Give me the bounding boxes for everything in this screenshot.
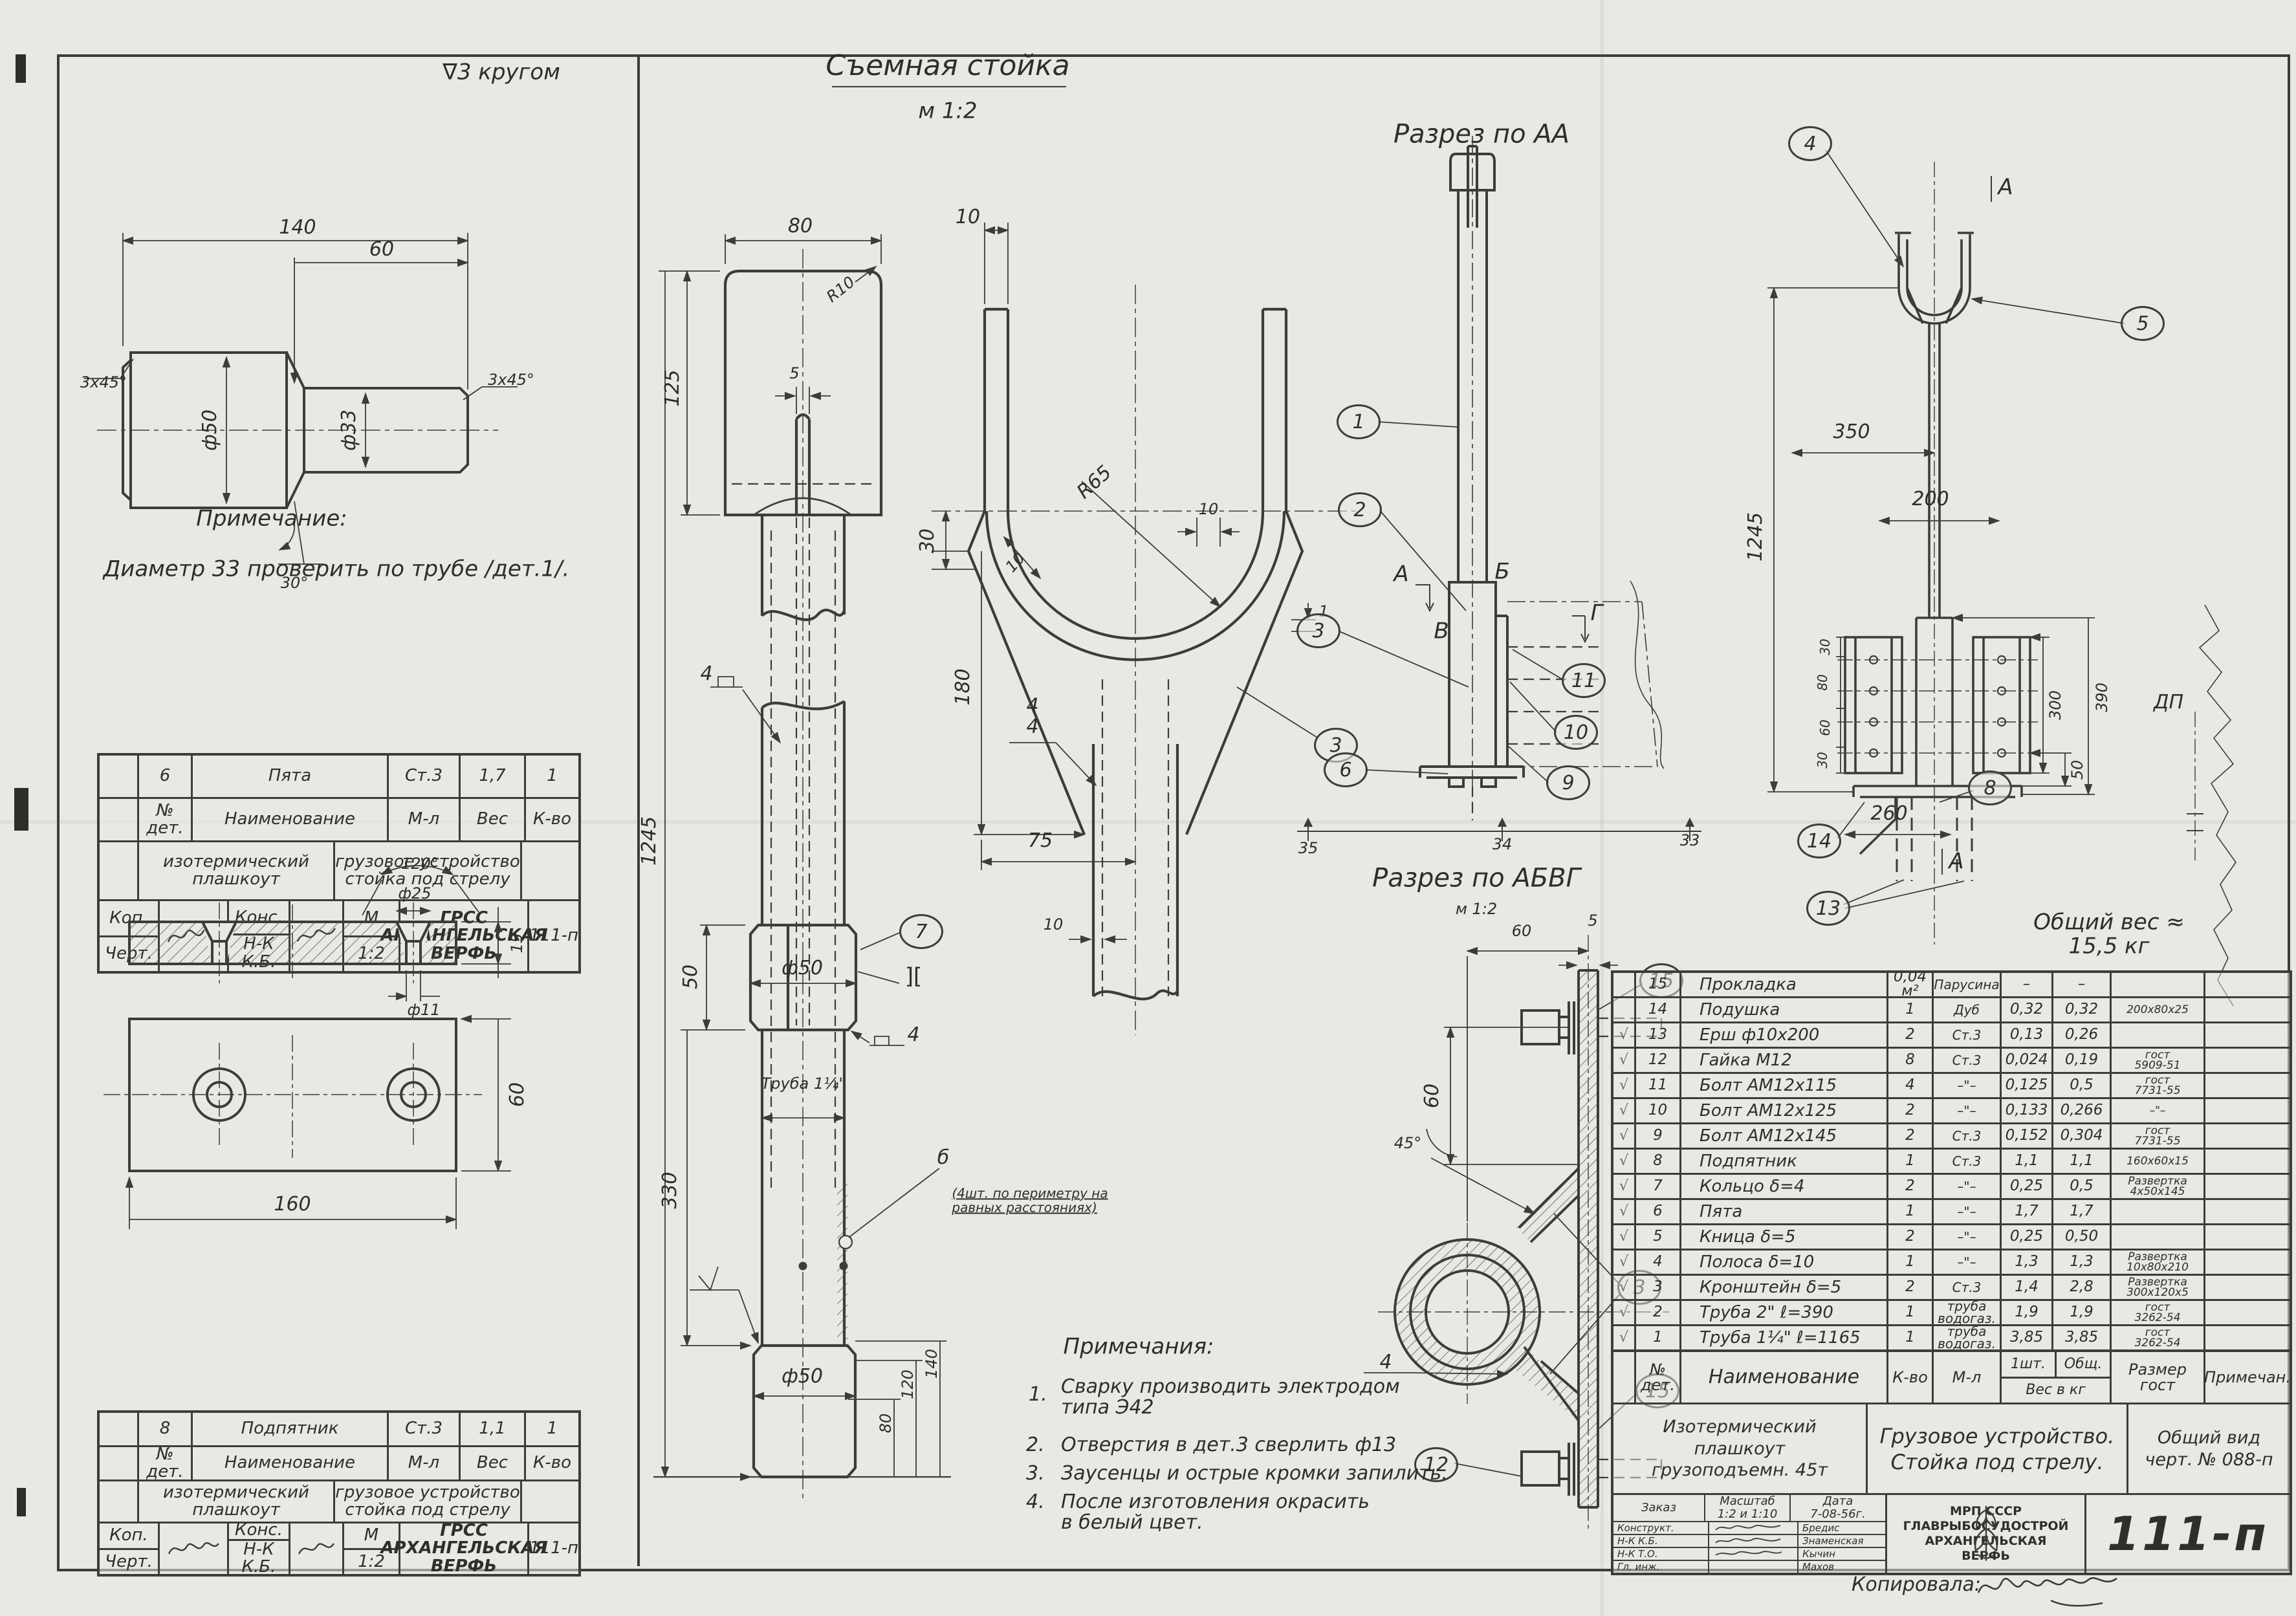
col-qty: К-во: [1888, 1352, 1934, 1403]
row-check: √: [1613, 1250, 1636, 1276]
note-title: Примечание:: [196, 507, 347, 531]
dim-front-5: 5: [789, 366, 799, 382]
dim-abvg-5: 5: [1588, 913, 1597, 930]
row-weight-each: 1,4: [2002, 1276, 2053, 1301]
dim-shaft-d33: ф33: [339, 409, 360, 451]
row-weight-total: 0,304: [2053, 1124, 2112, 1150]
balloon-8: 8: [1968, 770, 2012, 805]
row-weight-each: 0,25: [2002, 1175, 2053, 1200]
row-check: √: [1613, 1049, 1636, 1074]
dim-abvg-45deg: 45°: [1394, 1135, 1422, 1152]
table-row: √ 5 Кница δ=5 2 –"– 0,25 0,50: [1613, 1225, 2290, 1250]
note-item-text: После изготовления окрасить в белый цвет…: [1061, 1492, 1370, 1534]
dim-front-phi50-coupling: ф50: [782, 958, 823, 979]
section-letter-A: А: [1394, 563, 1408, 587]
dim-abvg-60-top: 60: [1512, 923, 1532, 940]
balloon-2: 2: [1338, 492, 1382, 527]
row-note: [2205, 1049, 2290, 1074]
row-num: 5: [1636, 1225, 1681, 1250]
row-weight-total: 1,7: [2053, 1200, 2112, 1225]
main-title: Съемная стойка: [825, 50, 1069, 82]
dim-abvg-60: 60: [1422, 1084, 1443, 1108]
dim-plate-15: 15: [509, 934, 526, 954]
balloon-5: 5: [2121, 306, 2165, 341]
section-abvg-title: Разрез по АБВГ: [1372, 864, 1580, 892]
row-weight-total: 0,266: [2053, 1099, 2112, 1124]
table-row: 15 Прокладка 0,04 м² Парусина – –: [1613, 973, 2290, 998]
parts-table-header: № дет. Наименование К-во М-л 1шт. Общ. В…: [1613, 1351, 2290, 1403]
row-size-gost: гост 3262-54: [2112, 1301, 2205, 1326]
row-weight-each: 0,13: [2002, 1023, 2053, 1049]
part-mat: Ст.3: [389, 756, 461, 797]
tb-role: Конструкт.: [1613, 1522, 1709, 1534]
row-weight-each: 0,25: [2002, 1225, 2053, 1250]
col-weight-group: 1шт. Общ. Вес в кг: [2002, 1352, 2112, 1403]
row-check: √: [1613, 1200, 1636, 1225]
notes-title: Примечания:: [1064, 1335, 1214, 1359]
section-mark-A-bottom: А: [1949, 850, 1963, 874]
row-qty: 2: [1888, 1225, 1934, 1250]
row-qty: 1: [1888, 1150, 1934, 1175]
balloon-13: 13: [1806, 891, 1850, 926]
section-mark-A-top: А: [1998, 176, 2013, 200]
row-material: Ст.3: [1934, 1124, 2002, 1150]
row-num: 1: [1636, 1326, 1681, 1351]
tb-date-value: 7-08-56г.: [1810, 1508, 1865, 1521]
note-item-text: Отверстия в дет.3 сверлить ф13: [1061, 1435, 1396, 1456]
row-qty: 1: [1888, 1200, 1934, 1225]
table-row: √ 10 Болт АМ12х125 2 –"– 0,133 0,266 –"–: [1613, 1099, 2290, 1124]
row-num: 13: [1636, 1023, 1681, 1049]
row-num: 8: [1636, 1150, 1681, 1175]
part-qty: 1: [526, 756, 578, 797]
dim-front-1245: 1245: [639, 816, 660, 866]
col-w1: 1шт.: [2002, 1352, 2057, 1377]
row-weight-total: 0,19: [2053, 1049, 2112, 1074]
row-qty: 2: [1888, 1276, 1934, 1301]
row-name: Болт АМ12х115: [1681, 1074, 1888, 1099]
section-letter-V: В: [1434, 620, 1449, 644]
balloon-9: 9: [1546, 765, 1590, 800]
balloon-3-aa: 3: [1296, 613, 1340, 648]
dim-shaft-60: 60: [369, 239, 394, 260]
dim-plate-60: 60: [507, 1082, 528, 1107]
part-num: 8: [139, 1413, 193, 1445]
dim-shaft-d50: ф50: [200, 409, 221, 451]
centerplane-label: ДП: [2154, 692, 2183, 713]
row-qty: 1: [1888, 1326, 1934, 1351]
row-name: Кница δ=5: [1681, 1225, 1888, 1250]
tb-name: Бредис: [1799, 1522, 1885, 1534]
row-note: [2205, 1326, 2290, 1351]
row-check: √: [1613, 1301, 1636, 1326]
row-size-gost: Развертка 4х50х145: [2112, 1175, 2205, 1200]
dim-front-140: 140: [924, 1349, 941, 1379]
row-weight-total: 2,8: [2053, 1276, 2112, 1301]
dim-front-phi50-cap: ф50: [782, 1366, 823, 1387]
row-num: 4: [1636, 1250, 1681, 1276]
row-qty: 8: [1888, 1049, 1934, 1074]
dim-chamfer-right: 3х45°: [488, 372, 534, 389]
note-item-text: Сварку производить электродом типа Э42: [1061, 1377, 1400, 1419]
dim-right-80: 80: [1816, 674, 1830, 690]
signature: [1709, 1522, 1799, 1534]
dim-side-10-right: 10: [1199, 501, 1219, 518]
total-weight: Общий вес ≈ 15,5 кг: [2016, 910, 2203, 957]
row-check: [1613, 973, 1636, 998]
row-material: Ст.3: [1934, 1049, 2002, 1074]
label-chert: Черт.: [100, 1548, 158, 1575]
table-row: √ 7 Кольцо δ=4 2 –"– 0,25 0,5 Развертка …: [1613, 1175, 2290, 1200]
part-qty: 1: [526, 1413, 578, 1445]
org-name: ГРСС АРХАНГЕЛЬСКАЯ ВЕРФЬ: [400, 1523, 529, 1574]
row-weight-total: 0,26: [2053, 1023, 2112, 1049]
title-block-podpyatnik: 8 Подпятник Ст.3 1,1 1 № дет. Наименован…: [97, 1410, 581, 1577]
edge-mark: [17, 1488, 26, 1516]
device-name: грузовое устройство стойка под стрелу: [335, 1481, 522, 1522]
tb-name: Знаменская: [1799, 1535, 1885, 1547]
row-weight-each: 1,9: [2002, 1301, 2053, 1326]
col-name: Наименование: [193, 1447, 389, 1480]
row-weight-each: 0,133: [2002, 1099, 2053, 1124]
weld-mark-4-lower: 4: [907, 1025, 919, 1045]
tb-order: Заказ: [1613, 1495, 1705, 1521]
row-qty: 1: [1888, 1301, 1934, 1326]
row-weight-total: 0,5: [2053, 1074, 2112, 1099]
row-qty: 1: [1888, 1250, 1934, 1276]
dim-side-30: 30: [917, 529, 938, 553]
row-material: Ст.3: [1934, 1276, 2002, 1301]
row-material: труба водогаз.: [1934, 1326, 2002, 1351]
table-row: √ 8 Подпятник 1 Ст.3 1,1 1,1 160х60х15: [1613, 1150, 2290, 1175]
note-item-num: 1.: [1029, 1384, 1047, 1405]
signature: [1709, 1548, 1799, 1560]
section-letter-B: Б: [1494, 560, 1509, 584]
part-weight: 1,7: [461, 756, 526, 797]
row-check: √: [1613, 1225, 1636, 1250]
row-qty: 2: [1888, 1023, 1934, 1049]
drawing-sheet: ∇3 кругом 140 60 3х45° 3х45° ф50 ф33 30°…: [0, 0, 2296, 1616]
row-size-gost: гост 5909-51: [2112, 1049, 2205, 1074]
tb-scale-value: 1:2 и 1:10: [1718, 1508, 1778, 1521]
row-note: [2205, 1099, 2290, 1124]
row-weight-each: 0,32: [2002, 998, 2053, 1023]
weld-mark-4-upper: 4: [700, 664, 712, 684]
row-num: 11: [1636, 1074, 1681, 1099]
tb-view: Общий вид черт. № 088-п: [2128, 1404, 2290, 1493]
part-weight: 1,1: [461, 1413, 526, 1445]
col-w2: Общ.: [2057, 1352, 2110, 1377]
row-note: [2205, 1023, 2290, 1049]
row-material: –"–: [1934, 1074, 2002, 1099]
col-wlabel: Вес в кг: [2002, 1377, 2110, 1403]
col-note: Примечан.: [2205, 1352, 2290, 1403]
row-note: [2205, 1175, 2290, 1200]
row-note: [2205, 1200, 2290, 1225]
tb-name: Махов: [1799, 1561, 1885, 1573]
row-note: [2205, 1276, 2290, 1301]
edge-mark: [16, 54, 26, 83]
copied-by-signature: [1973, 1567, 2141, 1612]
station-33: 33: [1680, 833, 1700, 849]
dim-side-10-top: 10: [956, 207, 980, 228]
row-size-gost: Развертка 300х120х5: [2112, 1276, 2205, 1301]
row-weight-total: 0,5: [2053, 1175, 2112, 1200]
row-name: Прокладка: [1681, 973, 1888, 998]
dim-right-200: 200: [1912, 489, 1949, 510]
project-name: изотермический плашкоут: [139, 1481, 335, 1522]
row-name: Подпятник: [1681, 1150, 1888, 1175]
note-item-text: Заусенцы и острые кромки запилить.: [1061, 1463, 1448, 1484]
row-weight-total: 0,32: [2053, 998, 2112, 1023]
row-material: Ст.3: [1934, 1023, 2002, 1049]
dim-side-75: 75: [1028, 831, 1053, 851]
row-note: [2205, 1074, 2290, 1099]
dim-side-180: 180: [953, 668, 974, 705]
row-check: √: [1613, 1074, 1636, 1099]
table-row: √ 11 Болт АМ12х115 4 –"– 0,125 0,5 гост …: [1613, 1074, 2290, 1099]
row-size-gost: гост 3262-54: [2112, 1326, 2205, 1351]
row-num: 12: [1636, 1049, 1681, 1074]
part-name: Подпятник: [193, 1413, 389, 1445]
dim-right-390: 390: [2094, 682, 2111, 712]
stand-views-drawing: [640, 84, 1378, 1520]
row-name: Пята: [1681, 1200, 1888, 1225]
dim-plate-120deg: 120°: [401, 856, 439, 873]
dim-front-330: 330: [660, 1172, 681, 1208]
row-material: Дуб: [1934, 998, 2002, 1023]
row-name: Подушка: [1681, 998, 1888, 1023]
row-weight-each: 0,152: [2002, 1124, 2053, 1150]
col-num: № дет.: [1636, 1352, 1681, 1403]
row-weight-each: 0,125: [2002, 1074, 2053, 1099]
row-note: [2205, 1150, 2290, 1175]
table-row: 14 Подушка 1 Дуб 0,32 0,32 200х80х25: [1613, 998, 2290, 1023]
row-weight-each: 1,1: [2002, 1150, 2053, 1175]
row-material: –"–: [1934, 1099, 2002, 1124]
row-check: √: [1613, 1276, 1636, 1301]
balloon-7: 7: [899, 914, 943, 949]
row-size-gost: [2112, 1225, 2205, 1250]
dim-right-260: 260: [1870, 803, 1907, 824]
signature: [160, 1523, 229, 1574]
row-material: Ст.3: [1934, 1150, 2002, 1175]
row-num: 10: [1636, 1099, 1681, 1124]
dim-right-30b: 30: [1816, 752, 1830, 768]
signature: [1709, 1535, 1799, 1547]
row-size-gost: гост 7731-55: [2112, 1124, 2205, 1150]
parts-rows: 15 Прокладка 0,04 м² Парусина – – 14 Под…: [1613, 973, 2290, 1351]
table-row: √ 13 Ерш ф10х200 2 Ст.3 0,13 0,26: [1613, 1023, 2290, 1049]
hole-tag-b: б: [937, 1148, 950, 1168]
row-name: Труба 2" ℓ=390: [1681, 1301, 1888, 1326]
row-material: –"–: [1934, 1175, 2002, 1200]
row-name: Гайка М12: [1681, 1049, 1888, 1074]
tb-device: Грузовое устройство. Стойка под стрелу.: [1868, 1404, 2128, 1493]
dim-plate-d11: ф11: [407, 1002, 440, 1019]
row-size-gost: [2112, 1023, 2205, 1049]
note-item-num: 4.: [1026, 1492, 1045, 1512]
row-material: –"–: [1934, 1250, 2002, 1276]
row-weight-each: 3,85: [2002, 1326, 2053, 1351]
col-weight: Вес: [461, 1447, 526, 1480]
dim-plate-d25: ф25: [398, 886, 431, 902]
row-weight-total: –: [2053, 973, 2112, 998]
weld-symbol-both-sides: ][: [905, 965, 923, 989]
hole-note: (4шт. по периметру на равных расстояниях…: [952, 1186, 1108, 1214]
row-weight-total: 3,85: [2053, 1326, 2112, 1351]
drawing-number: 111-п: [2086, 1495, 2290, 1573]
row-qty: 4: [1888, 1074, 1934, 1099]
row-name: Ерш ф10х200: [1681, 1023, 1888, 1049]
shaft-detail-drawing: [65, 194, 595, 608]
dim-right-300: 300: [2048, 690, 2064, 720]
row-check: √: [1613, 1124, 1636, 1150]
parts-table: 15 Прокладка 0,04 м² Парусина – – 14 Под…: [1611, 970, 2292, 1575]
surface-finish-note: ∇3 кругом: [443, 61, 560, 85]
row-num: 6: [1636, 1200, 1681, 1225]
col-size: Размер гост: [2112, 1352, 2205, 1403]
part-name: Пята: [193, 756, 389, 797]
row-size-gost: гост 7731-55: [2112, 1074, 2205, 1099]
row-weight-each: –: [2002, 973, 2053, 998]
balloon-11: 11: [1562, 663, 1606, 698]
dim-front-120: 120: [900, 1370, 917, 1399]
row-weight-total: 0,50: [2053, 1225, 2112, 1250]
station-34: 34: [1492, 836, 1513, 853]
row-check: √: [1613, 1099, 1636, 1124]
row-num: 15: [1636, 973, 1681, 998]
shipyard-logo: [1965, 1501, 2007, 1566]
col-num: № дет.: [139, 1447, 193, 1480]
tb-name: Кычин: [1799, 1548, 1885, 1560]
row-qty: 1: [1888, 998, 1934, 1023]
balloon-10: 10: [1554, 715, 1598, 750]
row-name: Кронштейн δ=5: [1681, 1276, 1888, 1301]
plate-detail-drawing: [91, 835, 595, 1261]
doc-code: 111-п: [529, 1523, 578, 1574]
balloon-1: 1: [1337, 404, 1381, 439]
dim-side-10-wall: 10: [1044, 917, 1064, 934]
dim-front-80b: 80: [878, 1414, 895, 1434]
row-name: Кольцо δ=4: [1681, 1175, 1888, 1200]
label-nk: Н-К К.Б.: [229, 1539, 289, 1577]
row-check: √: [1613, 1326, 1636, 1351]
row-num: 7: [1636, 1175, 1681, 1200]
section-letter-G: Г: [1591, 602, 1603, 626]
dim-right-60: 60: [1819, 719, 1833, 736]
balloon-6: 6: [1324, 752, 1368, 787]
row-material: Парусина: [1934, 973, 2002, 998]
row-size-gost: Развертка 10х80х210: [2112, 1250, 2205, 1276]
panel-separator: [637, 54, 640, 1566]
copied-by-label: Копировала:: [1852, 1575, 1981, 1595]
col-mat: М-л: [1934, 1352, 2002, 1403]
row-check: √: [1613, 1150, 1636, 1175]
table-row: √ 9 Болт АМ12х145 2 Ст.3 0,152 0,304 гос…: [1613, 1124, 2290, 1150]
row-note: [2205, 1124, 2290, 1150]
table-row: √ 12 Гайка М12 8 Ст.3 0,024 0,19 гост 59…: [1613, 1049, 2290, 1074]
dim-shaft-140: 140: [279, 217, 316, 238]
tb-role: Гл. инж.: [1613, 1561, 1709, 1573]
weld-mark-4-4: 4 4: [1026, 696, 1038, 738]
note-item-num: 3.: [1026, 1463, 1045, 1484]
row-note: [2205, 998, 2290, 1023]
row-check: √: [1613, 1023, 1636, 1049]
dim-right-30a: 30: [1819, 639, 1833, 655]
row-material: –"–: [1934, 1200, 2002, 1225]
row-weight-each: 1,7: [2002, 1200, 2053, 1225]
col-qty: К-во: [526, 1447, 578, 1480]
col-mat: М-л: [389, 1447, 461, 1480]
station-35: 35: [1298, 840, 1318, 857]
weld-mark-4-abvg: 4: [1379, 1352, 1392, 1373]
row-size-gost: 160х60х15: [2112, 1150, 2205, 1175]
row-check: √: [1613, 1175, 1636, 1200]
part-mat: Ст.3: [389, 1413, 461, 1445]
note-text: Диаметр 33 проверить по трубе /дет.1/.: [104, 558, 570, 582]
tb-role: Н-К Т.О.: [1613, 1548, 1709, 1560]
row-qty: 2: [1888, 1124, 1934, 1150]
dim-right-50: 50: [2070, 760, 2086, 780]
note-item-num: 2.: [1026, 1435, 1045, 1456]
row-check: [1613, 998, 1636, 1023]
row-size-gost: –"–: [2112, 1099, 2205, 1124]
table-row: √ 3 Кронштейн δ=5 2 Ст.3 1,4 2,8 Разверт…: [1613, 1276, 2290, 1301]
label-kop: Коп.: [100, 1523, 158, 1548]
dim-front-125: 125: [662, 369, 683, 406]
dim-plate-160: 160: [274, 1194, 311, 1215]
balloon-4: 4: [1788, 126, 1832, 161]
row-weight-each: 0,024: [2002, 1049, 2053, 1074]
row-name: Болт АМ12х125: [1681, 1099, 1888, 1124]
table-row: √ 1 Труба 1¼" ℓ=1165 1 труба водогаз. 3,…: [1613, 1326, 2290, 1351]
row-note: [2205, 1301, 2290, 1326]
row-size-gost: [2112, 1200, 2205, 1225]
col-name: Наименование: [1681, 1352, 1888, 1403]
signature: [290, 1523, 344, 1574]
row-qty: 2: [1888, 1175, 1934, 1200]
row-note: [2205, 1250, 2290, 1276]
tb-date-label: Дата: [1823, 1495, 1853, 1508]
row-weight-each: 1,3: [2002, 1250, 2053, 1276]
row-weight-total: 1,1: [2053, 1150, 2112, 1175]
dim-front-80: 80: [788, 216, 813, 237]
row-num: 9: [1636, 1124, 1681, 1150]
dim-right-1245: 1245: [1745, 512, 1766, 562]
row-num: 2: [1636, 1301, 1681, 1326]
row-weight-total: 1,9: [2053, 1301, 2112, 1326]
dim-front-50: 50: [681, 965, 701, 989]
dim-chamfer-left: 3х45°: [80, 375, 127, 391]
label-kons: Конс.: [229, 1522, 289, 1539]
row-note: [2205, 973, 2290, 998]
row-material: –"–: [1934, 1225, 2002, 1250]
pipe-size-label: Труба 1¼": [761, 1076, 846, 1093]
balloon-14: 14: [1797, 824, 1841, 858]
row-name: Полоса δ=10: [1681, 1250, 1888, 1276]
row-note: [2205, 1225, 2290, 1250]
row-name: Болт АМ12х145: [1681, 1124, 1888, 1150]
row-name: Труба 1¼" ℓ=1165: [1681, 1326, 1888, 1351]
row-qty: 0,04 м²: [1888, 973, 1934, 998]
row-size-gost: 200х80х25: [2112, 998, 2205, 1023]
row-qty: 2: [1888, 1099, 1934, 1124]
row-num: 3: [1636, 1276, 1681, 1301]
tb-scale-label: Масштаб: [1720, 1495, 1775, 1508]
tb-role: Н-К К.Б.: [1613, 1535, 1709, 1547]
part-num: 6: [139, 756, 193, 797]
